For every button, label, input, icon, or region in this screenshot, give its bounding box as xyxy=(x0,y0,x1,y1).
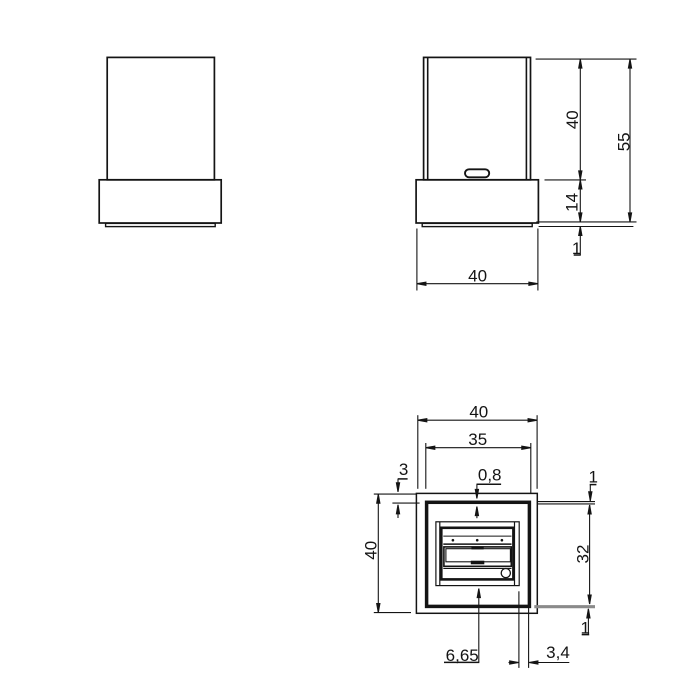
svg-text:1: 1 xyxy=(580,618,589,637)
svg-text:1: 1 xyxy=(572,239,581,258)
svg-text:32: 32 xyxy=(573,545,592,564)
svg-text:55: 55 xyxy=(614,132,633,151)
svg-text:3,4: 3,4 xyxy=(546,643,570,662)
svg-text:40: 40 xyxy=(468,266,487,285)
svg-text:6,65: 6,65 xyxy=(446,646,479,665)
svg-text:40: 40 xyxy=(563,110,582,129)
svg-text:40: 40 xyxy=(361,541,380,560)
svg-text:35: 35 xyxy=(468,430,487,449)
svg-text:14: 14 xyxy=(562,193,581,212)
svg-text:1: 1 xyxy=(588,468,597,487)
svg-text:0,8: 0,8 xyxy=(478,465,502,484)
svg-text:40: 40 xyxy=(469,403,488,422)
svg-text:3: 3 xyxy=(399,460,408,479)
